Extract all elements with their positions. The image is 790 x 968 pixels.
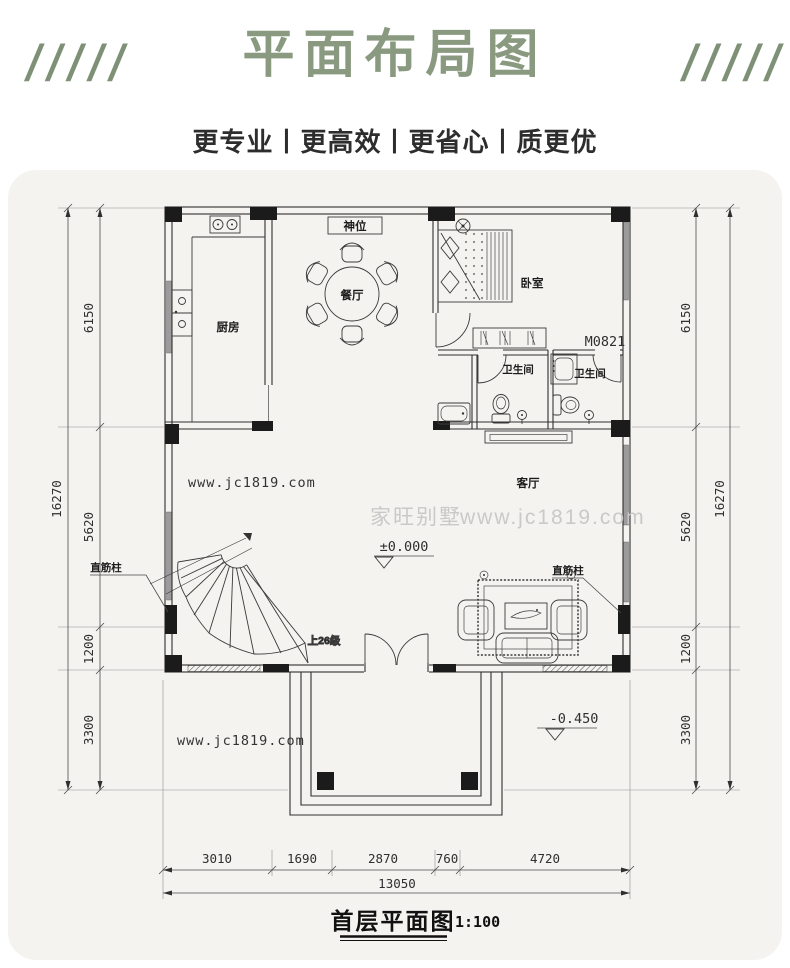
decorative-slashes-right: ///// [679, 34, 789, 88]
dim-right-seg-6150: 6150 [678, 303, 693, 333]
watermark-site-lower: www.jc1819.com [177, 733, 305, 749]
structural-columns [165, 207, 630, 790]
level-porch-value: -0.450 [550, 711, 599, 727]
armchair-icon-right [551, 600, 587, 640]
kitchen: 厨房 [172, 216, 265, 422]
drawing-caption: 首层平面图 1:100 [331, 908, 501, 941]
dim-bottom-seg-3010: 3010 [202, 851, 232, 866]
dim-bottom-seg-760: 760 [436, 851, 459, 866]
kitchen-sink-icon [172, 290, 192, 336]
dim-left-seg-1200: 1200 [81, 634, 96, 664]
dim-right-seg-5620: 5620 [678, 512, 693, 542]
room-label-kitchen: 厨房 [217, 320, 240, 334]
floor-plan-drawing: 6150 5620 1200 3300 16270 6150 5620 [8, 170, 782, 960]
dim-bottom-seg-2870: 2870 [368, 851, 398, 866]
windows [167, 222, 629, 672]
room-label-bath-right: 卫生间 [574, 367, 606, 380]
room-label-living: 客厅 [516, 476, 540, 490]
entrance-porch [290, 672, 502, 815]
dim-bottom-total: 13050 [378, 876, 416, 891]
dim-bottom-seg-4720: 4720 [530, 851, 560, 866]
caption-title: 首层平面图 [331, 908, 456, 934]
page: ///// 平面布局图 ///// 更专业丨更高效丨更省心丨质更优 [0, 0, 790, 968]
room-label-bath-left: 卫生间 [502, 363, 534, 376]
dim-bottom-seg-1690: 1690 [287, 851, 317, 866]
column-label-left: 直筋柱 [90, 561, 122, 574]
page-subtitle: 更专业丨更高效丨更省心丨质更优 [0, 122, 790, 159]
dim-right-seg-1200: 1200 [678, 634, 693, 664]
altar: 神位 [328, 217, 382, 234]
dim-right-seg-3300: 3300 [678, 715, 693, 745]
dim-right-total: 16270 [712, 480, 727, 518]
room-label-bedroom: 卧室 [521, 276, 544, 290]
dimension-right: 6150 5620 1200 3300 16270 [504, 204, 740, 794]
toilet-icon-right [553, 395, 579, 415]
door-tag-M0821: M0821 [585, 334, 626, 350]
room-label-altar: 神位 [344, 219, 367, 233]
toilet-icon-left [492, 395, 510, 424]
watermark-brand: 家旺别墅 [370, 506, 462, 529]
coffee-table-icon [505, 603, 547, 629]
dim-left-seg-3300: 3300 [81, 715, 96, 745]
floor-plan-card: 6150 5620 1200 3300 16270 6150 5620 [8, 170, 782, 960]
doors [365, 313, 621, 665]
stove-icon [210, 216, 240, 233]
room-label-dining: 餐厅 [340, 288, 364, 302]
column-label-right: 直筋柱 [552, 564, 584, 577]
armchair-icon-left [458, 600, 494, 640]
wardrobe [473, 328, 546, 348]
loveseat-icon [496, 633, 558, 663]
watermark-site-upper: www.jc1819.com [188, 475, 316, 491]
bedroom: 卧室 [438, 219, 544, 302]
sink-icon-right [551, 354, 577, 384]
staircase: 上26级 [150, 533, 341, 663]
level-main-value: ±0.000 [380, 539, 429, 555]
page-title: 平面布局图 [0, 12, 790, 87]
dim-left-seg-5620: 5620 [81, 512, 96, 542]
plant-icon [456, 219, 470, 233]
watermark-site-center: www.jc1819.com [459, 506, 646, 529]
level-marker-main: ±0.000 [374, 539, 434, 568]
dim-left-seg-6150: 6150 [81, 303, 96, 333]
level-marker-porch: -0.450 [537, 711, 598, 740]
dim-left-total: 16270 [49, 480, 64, 518]
caption-scale: 1:100 [455, 913, 500, 931]
mop-sink-icon [438, 403, 470, 424]
dining-area: 餐厅 [302, 243, 402, 345]
stair-note: 上26级 [308, 634, 341, 647]
watermarks: www.jc1819.com 家旺别墅 www.jc1819.com www.j… [177, 475, 646, 749]
